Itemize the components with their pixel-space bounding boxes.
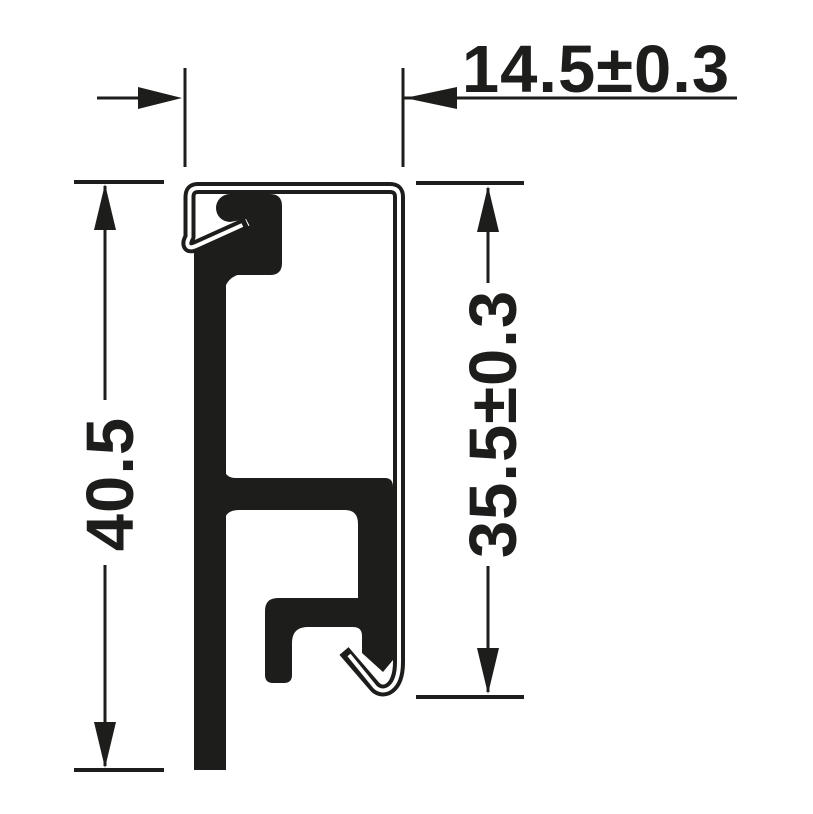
arrowhead-right-icon: [138, 87, 182, 109]
arrowhead-left-icon: [405, 87, 457, 109]
arrowhead-down-icon: [94, 722, 116, 768]
overall-height-label: 40.5: [73, 417, 148, 551]
right-height-label: 35.5±0.3: [456, 290, 531, 558]
arrowhead-up-icon: [477, 186, 499, 232]
dimension-width-top: 14.5±0.3: [97, 32, 737, 167]
dimension-height-right: 35.5±0.3: [416, 183, 531, 697]
width-dimension-label: 14.5±0.3: [462, 32, 730, 107]
drawing-canvas: 14.5±0.3 40.5 35.5±0.3: [0, 0, 813, 814]
profile-cross-section-drawing: 14.5±0.3 40.5 35.5±0.3: [0, 0, 813, 814]
body-left-wall: [194, 250, 226, 770]
arrowhead-up-icon: [94, 184, 116, 230]
profile-body: [194, 194, 393, 770]
body-lower-arms: [224, 466, 393, 683]
body-wall-fillet: [224, 274, 241, 291]
dimension-height-overall: 40.5: [73, 182, 164, 770]
arrowhead-down-icon: [477, 648, 499, 694]
